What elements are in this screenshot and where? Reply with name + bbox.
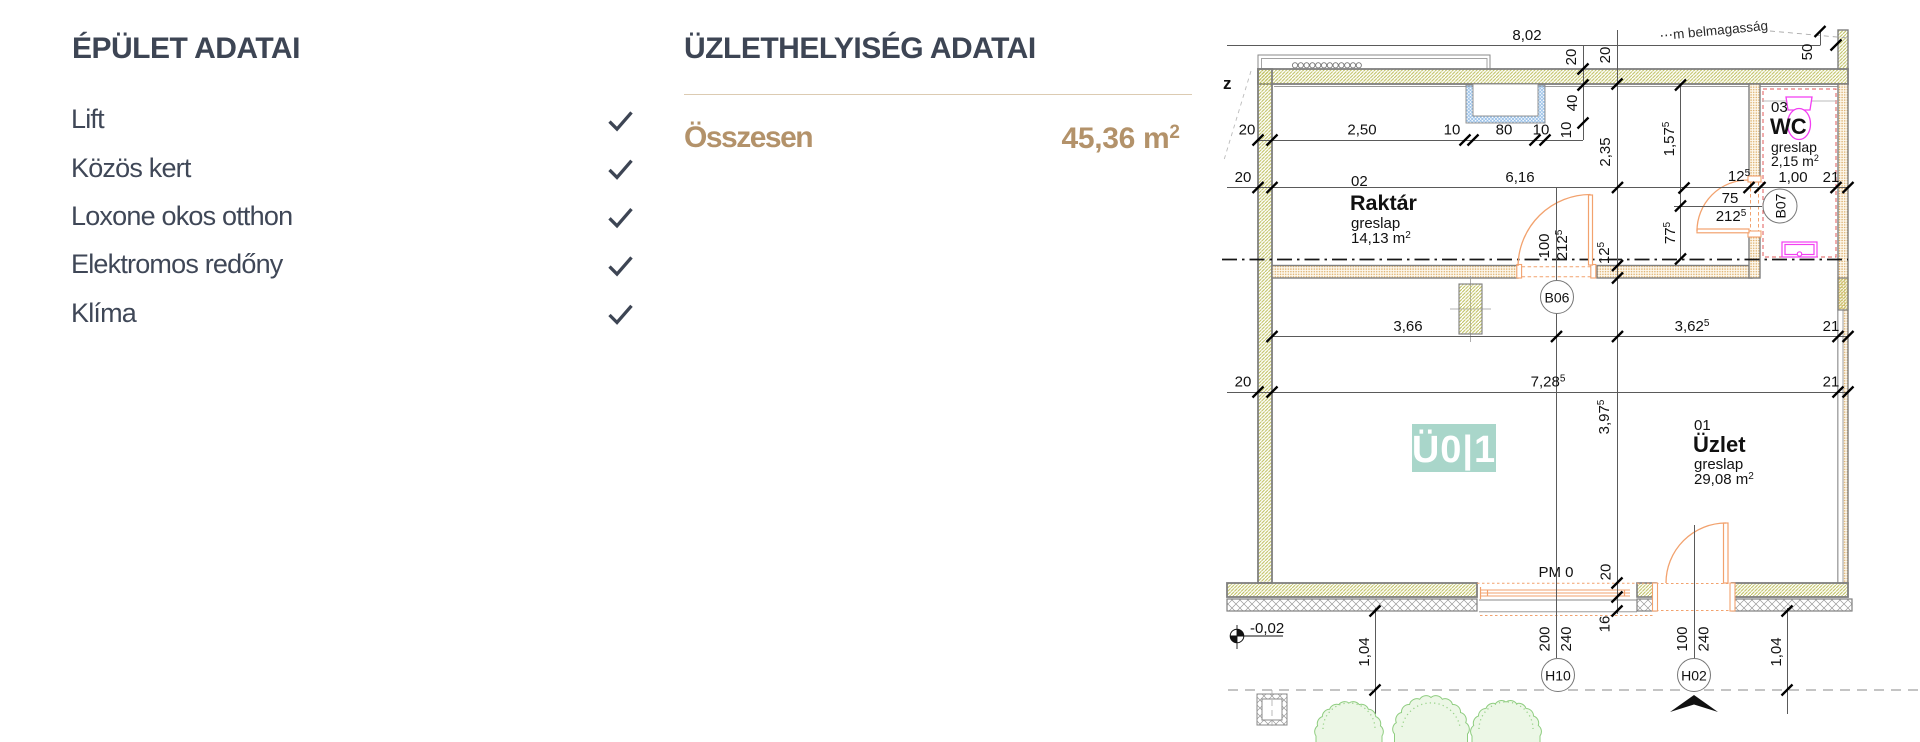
svg-text:20: 20 [1235, 169, 1252, 186]
svg-text:20: 20 [1563, 49, 1580, 66]
svg-text:PM 0: PM 0 [1538, 564, 1573, 581]
svg-text:775: 775 [1662, 221, 1679, 244]
svg-text:20: 20 [1235, 374, 1252, 391]
svg-text:21: 21 [1823, 318, 1840, 335]
svg-text:1,04: 1,04 [1768, 637, 1785, 666]
svg-text:100: 100 [1674, 626, 1691, 651]
svg-text:Ü0|1: Ü0|1 [1412, 428, 1496, 471]
svg-text:240: 240 [1558, 626, 1575, 651]
svg-text:75: 75 [1722, 190, 1739, 207]
svg-text:10: 10 [1533, 122, 1550, 139]
svg-text:Raktár: Raktár [1350, 191, 1418, 215]
svg-text:10: 10 [1558, 122, 1575, 139]
svg-text:100: 100 [1536, 233, 1553, 258]
svg-text:7,285: 7,285 [1531, 374, 1566, 391]
svg-text:z: z [1223, 74, 1232, 93]
svg-text:29,08 m2: 29,08 m2 [1694, 471, 1754, 488]
svg-text:2,50: 2,50 [1347, 122, 1376, 139]
svg-text:1,575: 1,575 [1661, 121, 1678, 156]
svg-text:3,66: 3,66 [1393, 318, 1422, 335]
svg-text:-0,02: -0,02 [1250, 620, 1284, 637]
svg-text:16: 16 [1597, 616, 1614, 633]
svg-text:2125: 2125 [1554, 229, 1571, 260]
svg-text:20: 20 [1598, 564, 1615, 581]
svg-text:2,15 m2: 2,15 m2 [1771, 153, 1819, 169]
svg-text:B06: B06 [1545, 290, 1570, 306]
svg-text:240: 240 [1696, 626, 1713, 651]
svg-text:80: 80 [1496, 122, 1513, 139]
svg-text:21: 21 [1823, 169, 1840, 186]
svg-text:200: 200 [1537, 626, 1554, 651]
svg-text:3,975: 3,975 [1596, 399, 1613, 434]
svg-text:20: 20 [1597, 47, 1614, 64]
svg-text:50: 50 [1799, 44, 1816, 61]
svg-text:1,00: 1,00 [1778, 169, 1807, 186]
svg-text:02: 02 [1351, 173, 1368, 190]
svg-text:H10: H10 [1545, 668, 1571, 684]
svg-text:20: 20 [1239, 122, 1256, 139]
svg-text:21: 21 [1823, 374, 1840, 391]
svg-text:125: 125 [1728, 168, 1751, 185]
svg-text:WC: WC [1770, 114, 1807, 139]
svg-text:B07: B07 [1773, 193, 1789, 218]
svg-text:2,35: 2,35 [1597, 137, 1614, 166]
svg-text:8,02: 8,02 [1512, 27, 1541, 44]
svg-text:3,625: 3,625 [1675, 318, 1710, 335]
svg-text:6,16: 6,16 [1505, 169, 1534, 186]
svg-text:Üzlet: Üzlet [1693, 432, 1746, 457]
svg-text:14,13 m2: 14,13 m2 [1351, 230, 1411, 247]
svg-text:2125: 2125 [1716, 208, 1747, 225]
svg-text:1,04: 1,04 [1356, 637, 1373, 666]
svg-text:10: 10 [1444, 122, 1461, 139]
svg-text:125: 125 [1596, 241, 1613, 264]
svg-text:⋯m belmagasság: ⋯m belmagasság [1659, 18, 1769, 43]
svg-text:40: 40 [1564, 95, 1581, 112]
svg-text:H02: H02 [1681, 668, 1707, 684]
